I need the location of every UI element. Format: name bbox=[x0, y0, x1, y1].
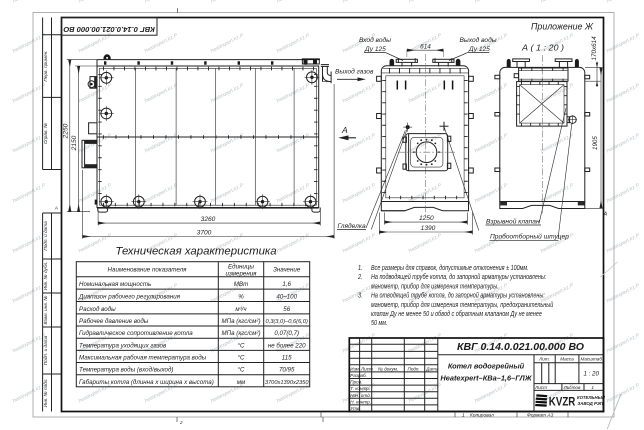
svg-text:2: 2 bbox=[179, 420, 183, 425]
svg-text:Значение: Значение bbox=[273, 267, 301, 274]
svg-text:Дата: Дата bbox=[425, 366, 439, 371]
svg-text:КОТЕЛЬНЫЙ: КОТЕЛЬНЫЙ bbox=[577, 395, 606, 400]
svg-text:2150: 2150 bbox=[71, 135, 78, 151]
svg-text:56: 56 bbox=[283, 306, 290, 313]
svg-text:МПа (кгс/см²): МПа (кгс/см²) bbox=[221, 318, 260, 325]
svg-text:Лит.: Лит. bbox=[538, 357, 550, 362]
svg-text:А ( 1 : 20 ): А ( 1 : 20 ) bbox=[521, 44, 564, 53]
svg-text:А: А bbox=[603, 212, 608, 218]
svg-text:%: % bbox=[238, 293, 244, 300]
svg-text:А: А bbox=[341, 125, 348, 135]
svg-text:1905: 1905 bbox=[592, 136, 599, 150]
svg-text:Расход воды: Расход воды bbox=[79, 306, 116, 313]
svg-text:Справ. №: Справ. № bbox=[43, 123, 48, 144]
svg-text:3260: 3260 bbox=[201, 216, 216, 223]
svg-text:Разраб.: Разраб. bbox=[350, 373, 367, 378]
svg-text:Котел водогрейный: Котел водогрейный bbox=[448, 361, 525, 370]
svg-text:3700: 3700 bbox=[197, 229, 212, 236]
svg-text:Номинальная мощность: Номинальная мощность bbox=[79, 281, 151, 288]
svg-text:°С: °С bbox=[238, 355, 245, 362]
svg-text:Гляделка: Гляделка bbox=[338, 222, 366, 230]
svg-text:1250: 1250 bbox=[419, 215, 434, 222]
svg-text:На подводящей трубе котла, до: На подводящей трубе котла, до запорной а… bbox=[371, 274, 547, 282]
svg-text:Все размеры для справок, допус: Все размеры для справок, допустимые откл… bbox=[371, 264, 529, 272]
svg-text:Максимальная рабочая температу: Максимальная рабочая температура воды bbox=[79, 355, 207, 362]
svg-text:Температура уходящих газов: Температура уходящих газов bbox=[79, 342, 167, 349]
svg-text:1: 1 bbox=[462, 413, 465, 419]
svg-text:м³/ч: м³/ч bbox=[235, 306, 247, 313]
svg-text:манометр, прибор для измерения: манометр, прибор для измерения температу… bbox=[371, 283, 499, 291]
svg-text:Пров.: Пров. bbox=[350, 380, 362, 385]
svg-text:А: А bbox=[54, 206, 58, 211]
svg-text:Листов: Листов bbox=[563, 385, 581, 390]
svg-text:мм: мм bbox=[237, 379, 246, 386]
svg-text:Формат А3: Формат А3 bbox=[527, 413, 554, 419]
svg-text:1 : 20: 1 : 20 bbox=[583, 371, 599, 378]
svg-text:Лист: Лист bbox=[534, 385, 547, 390]
svg-text:Взам. инв. №: Взам. инв. № bbox=[43, 296, 48, 325]
svg-text:50 мм.: 50 мм. bbox=[371, 320, 388, 328]
svg-text:Изм: Изм bbox=[350, 366, 359, 371]
svg-text:Перв. примен.: Перв. примен. bbox=[43, 50, 48, 81]
svg-text:170х614: 170х614 bbox=[591, 36, 598, 61]
svg-text:614: 614 bbox=[420, 43, 431, 50]
svg-text:Вход воды: Вход воды bbox=[359, 36, 391, 44]
svg-text:2.: 2. bbox=[357, 274, 362, 282]
svg-text:°С: °С bbox=[238, 342, 245, 349]
svg-text:манометр, прибор для измерения: манометр, прибор для измерения температу… bbox=[371, 301, 554, 309]
svg-text:Инв. № дубл.: Инв. № дубл. bbox=[43, 262, 48, 291]
svg-text:°С: °С bbox=[238, 367, 245, 374]
svg-text:измерения: измерения bbox=[226, 270, 258, 277]
svg-text:Взрывной клапан: Взрывной клапан bbox=[486, 217, 540, 225]
svg-text:1,6: 1,6 bbox=[282, 281, 291, 288]
svg-text:KVZR: KVZR bbox=[549, 395, 576, 409]
svg-text:Нач. отд.: Нач. отд. bbox=[350, 393, 371, 398]
svg-text:Масса: Масса bbox=[560, 357, 574, 362]
svg-text:1: 1 bbox=[591, 385, 594, 390]
svg-text:Пробоотборный штуцер: Пробоотборный штуцер bbox=[490, 233, 569, 241]
svg-text:70/95: 70/95 bbox=[279, 367, 295, 374]
svg-text:3700х1390х2350: 3700х1390х2350 bbox=[265, 380, 309, 386]
svg-text:Наименование показателя: Наименование показателя bbox=[108, 267, 188, 274]
svg-text:1.: 1. bbox=[358, 264, 363, 272]
svg-text:Диапазон рабочего регулировани: Диапазон рабочего регулирования bbox=[78, 293, 181, 300]
svg-text:КВГ 0.14.0.021.00.000 ВО: КВГ 0.14.0.021.00.000 ВО bbox=[63, 25, 155, 34]
svg-text:Приложение Ж: Приложение Ж bbox=[531, 22, 594, 32]
svg-text:Лист: Лист bbox=[360, 366, 373, 371]
svg-text:Н. контр.: Н. контр. bbox=[350, 399, 371, 404]
svg-text:№ докум.: № докум. bbox=[378, 366, 398, 371]
svg-text:Подп. и дата: Подп. и дата bbox=[43, 335, 48, 365]
svg-text:0,07(0,7): 0,07(0,7) bbox=[274, 330, 299, 337]
svg-text:Выход газов: Выход газов bbox=[335, 67, 374, 75]
svg-text:40–100: 40–100 bbox=[276, 293, 297, 300]
svg-text:не более 220: не более 220 bbox=[268, 342, 306, 349]
svg-text:МПа (кгс/см²): МПа (кгс/см²) bbox=[221, 330, 260, 337]
svg-text:ЗАВОД РЭП: ЗАВОД РЭП bbox=[578, 401, 604, 406]
svg-text:Габариты котла (длинна х ширин: Габариты котла (длинна х ширина х высота… bbox=[79, 379, 214, 386]
svg-text:МВт: МВт bbox=[234, 281, 248, 288]
svg-text:3.: 3. bbox=[358, 292, 363, 300]
svg-text:КВГ 0.14.0.021.00.000 ВО: КВГ 0.14.0.021.00.000 ВО bbox=[457, 342, 584, 353]
svg-text:Гидравлическое сопротивление к: Гидравлическое сопротивление котла bbox=[79, 330, 193, 337]
svg-text:Техническая характеристика: Техническая характеристика bbox=[115, 246, 276, 258]
svg-text:Подп. и дата: Подп. и дата bbox=[43, 221, 48, 251]
svg-text:1390: 1390 bbox=[421, 225, 436, 232]
svg-text:На отводящей трубе котла, до з: На отводящей трубе котла, до запорной ар… bbox=[371, 292, 545, 300]
svg-text:клапан Ду не менее 50 и обвод: клапан Ду не менее 50 и обвод с обратным… bbox=[371, 310, 542, 318]
svg-text:Инв. № подл.: Инв. № подл. bbox=[43, 378, 48, 407]
svg-text:Heatexpert–КВа–1,6–ГЛЖ: Heatexpert–КВа–1,6–ГЛЖ bbox=[440, 373, 532, 382]
svg-text:0,3(3,0)–0,6(6,0): 0,3(3,0)–0,6(6,0) bbox=[266, 319, 308, 325]
svg-text:115: 115 bbox=[282, 355, 292, 362]
svg-text:Рабочее давление воды: Рабочее давление воды bbox=[79, 318, 149, 325]
svg-text:Выход воды: Выход воды bbox=[460, 36, 497, 44]
svg-text:Утв.: Утв. bbox=[350, 406, 360, 411]
svg-text:Ду 125: Ду 125 bbox=[364, 46, 386, 53]
svg-text:Масштаб: Масштаб bbox=[580, 357, 602, 362]
svg-text:Т. контр.: Т. контр. bbox=[350, 386, 370, 391]
svg-text:Копировал: Копировал bbox=[470, 413, 494, 419]
svg-text:Подп.: Подп. bbox=[408, 366, 420, 371]
svg-text:Ду 125: Ду 125 bbox=[468, 46, 490, 53]
svg-text:Температура воды (вход/выход): Температура воды (вход/выход) bbox=[79, 367, 173, 374]
svg-text:2250: 2250 bbox=[62, 123, 69, 139]
